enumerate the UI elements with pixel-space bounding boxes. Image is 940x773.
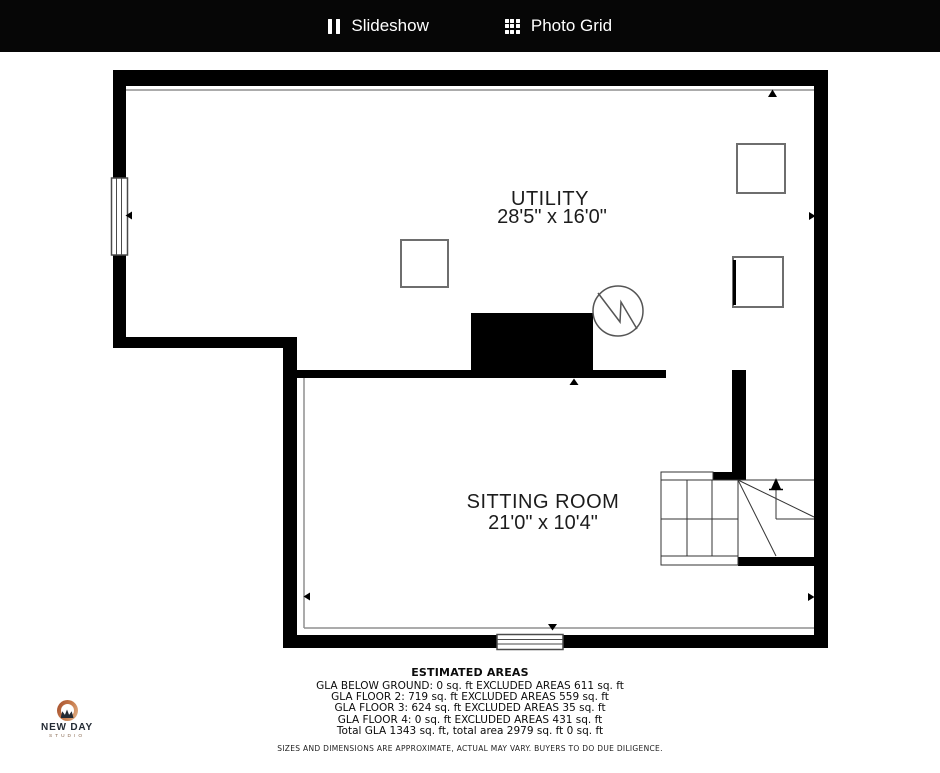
sitting-room-name: SITTING ROOM (467, 491, 620, 513)
logo-name: NEW DAY (30, 722, 104, 733)
floor-plan: UTILITY 28'5" x 16'0" SITTING ROOM 21'0"… (0, 0, 940, 768)
window-left (112, 178, 128, 255)
wall-right (814, 70, 828, 648)
chimney-block (471, 313, 593, 372)
wall-left-upper (113, 86, 126, 178)
newday-studio-logo: NEW DAY STUDIO (30, 700, 104, 739)
utility-room-dimensions: 28'5" x 16'0" (497, 206, 607, 228)
disclaimer-text: SIZES AND DIMENSIONS ARE APPROXIMATE, AC… (0, 744, 940, 753)
wall-utility-bottom (113, 337, 296, 348)
slideshow-button[interactable]: Slideshow (328, 16, 429, 36)
fan-symbol-icon (593, 286, 643, 336)
wall-stairs-nub (713, 472, 738, 480)
wall-stairwell-vertical (732, 370, 746, 480)
marker-sitting-right-icon (808, 593, 815, 601)
gla-total-line: Total GLA 1343 sq. ft, total area 2979 s… (0, 726, 940, 737)
estimated-areas: ESTIMATED AREAS GLA BELOW GROUND: 0 sq. … (0, 666, 940, 753)
marker-sitting-top-icon (570, 379, 579, 386)
top-bar: Slideshow Photo Grid (0, 0, 940, 52)
photo-grid-label: Photo Grid (531, 16, 612, 36)
staircase (661, 472, 814, 565)
gla-line: GLA FLOOR 3: 624 sq. ft EXCLUDED AREAS 3… (0, 703, 940, 714)
sunrise-logo-icon (57, 700, 78, 721)
estimated-areas-title: ESTIMATED AREAS (0, 666, 940, 679)
slideshow-label: Slideshow (351, 16, 429, 36)
sitting-room-dimensions: 21'0" x 10'4" (488, 512, 598, 534)
wall-top (113, 70, 828, 86)
photo-grid-icon (505, 19, 520, 34)
slideshow-pause-icon (328, 19, 341, 34)
fixture-square-right-top (737, 144, 785, 193)
wall-stairs-bottom (738, 557, 814, 566)
window-bottom (497, 635, 563, 650)
wall-left-lower (113, 255, 126, 337)
fixture-square-utility (401, 240, 448, 287)
logo-subtitle: STUDIO (30, 734, 104, 739)
photo-grid-button[interactable]: Photo Grid (505, 16, 612, 36)
wall-sitting-left (283, 337, 297, 648)
logo-bird-silhouette-icon (61, 709, 74, 718)
fixture-square-right-bottom (733, 257, 783, 307)
